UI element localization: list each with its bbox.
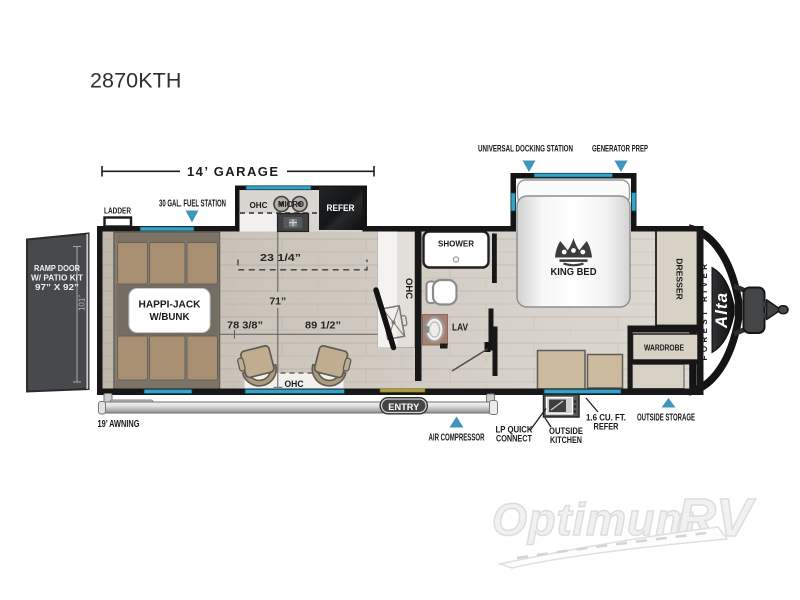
svg-text:HAPPI-JACK: HAPPI-JACK <box>139 299 201 311</box>
svg-text:OHC: OHC <box>403 278 414 299</box>
svg-text:23 1/4”: 23 1/4” <box>260 252 301 264</box>
svg-text:2870KTH: 2870KTH <box>90 69 182 93</box>
svg-text:KING BED: KING BED <box>551 267 597 278</box>
svg-text:89 1/2”: 89 1/2” <box>305 320 341 332</box>
svg-text:OHC: OHC <box>285 379 304 389</box>
svg-text:W/BUNK: W/BUNK <box>150 311 190 323</box>
svg-text:RAMP DOOR: RAMP DOOR <box>34 264 80 273</box>
svg-text:REFER: REFER <box>327 203 355 213</box>
svg-text:LAV: LAV <box>452 323 468 334</box>
svg-text:30 GAL. FUEL STATION: 30 GAL. FUEL STATION <box>159 199 226 210</box>
svg-text:DRESSER: DRESSER <box>675 258 685 300</box>
svg-text:WARDROBE: WARDROBE <box>644 343 684 353</box>
svg-text:ENTRY: ENTRY <box>388 402 420 412</box>
svg-text:MICRO: MICRO <box>278 199 304 209</box>
svg-text:AIR COMPRESSOR: AIR COMPRESSOR <box>429 433 485 444</box>
svg-text:14’ GARAGE: 14’ GARAGE <box>187 164 278 179</box>
svg-text:KITCHEN: KITCHEN <box>550 435 582 445</box>
svg-text:19’ AWNING: 19’ AWNING <box>98 419 140 430</box>
svg-text:Alta: Alta <box>712 292 731 329</box>
svg-text:FOREST RIVER: FOREST RIVER <box>700 261 709 361</box>
svg-text:OUTSIDE STORAGE: OUTSIDE STORAGE <box>637 413 695 424</box>
svg-text:W/ PATIO KIT: W/ PATIO KIT <box>31 274 83 283</box>
svg-text:101”: 101” <box>78 295 87 311</box>
svg-text:OHC: OHC <box>250 200 268 210</box>
svg-text:71”: 71” <box>269 296 286 308</box>
svg-text:78 3/8”: 78 3/8” <box>227 320 263 332</box>
svg-text:UNIVERSAL DOCKING STATION: UNIVERSAL DOCKING STATION <box>478 144 573 155</box>
svg-text:LADDER: LADDER <box>104 206 132 216</box>
svg-text:97” X 92”: 97” X 92” <box>35 283 79 292</box>
svg-text:SHOWER: SHOWER <box>438 239 474 249</box>
svg-text:CONNECT: CONNECT <box>496 434 533 444</box>
svg-text:GENERATOR PREP: GENERATOR PREP <box>592 144 648 155</box>
svg-text:REFER: REFER <box>594 422 620 432</box>
